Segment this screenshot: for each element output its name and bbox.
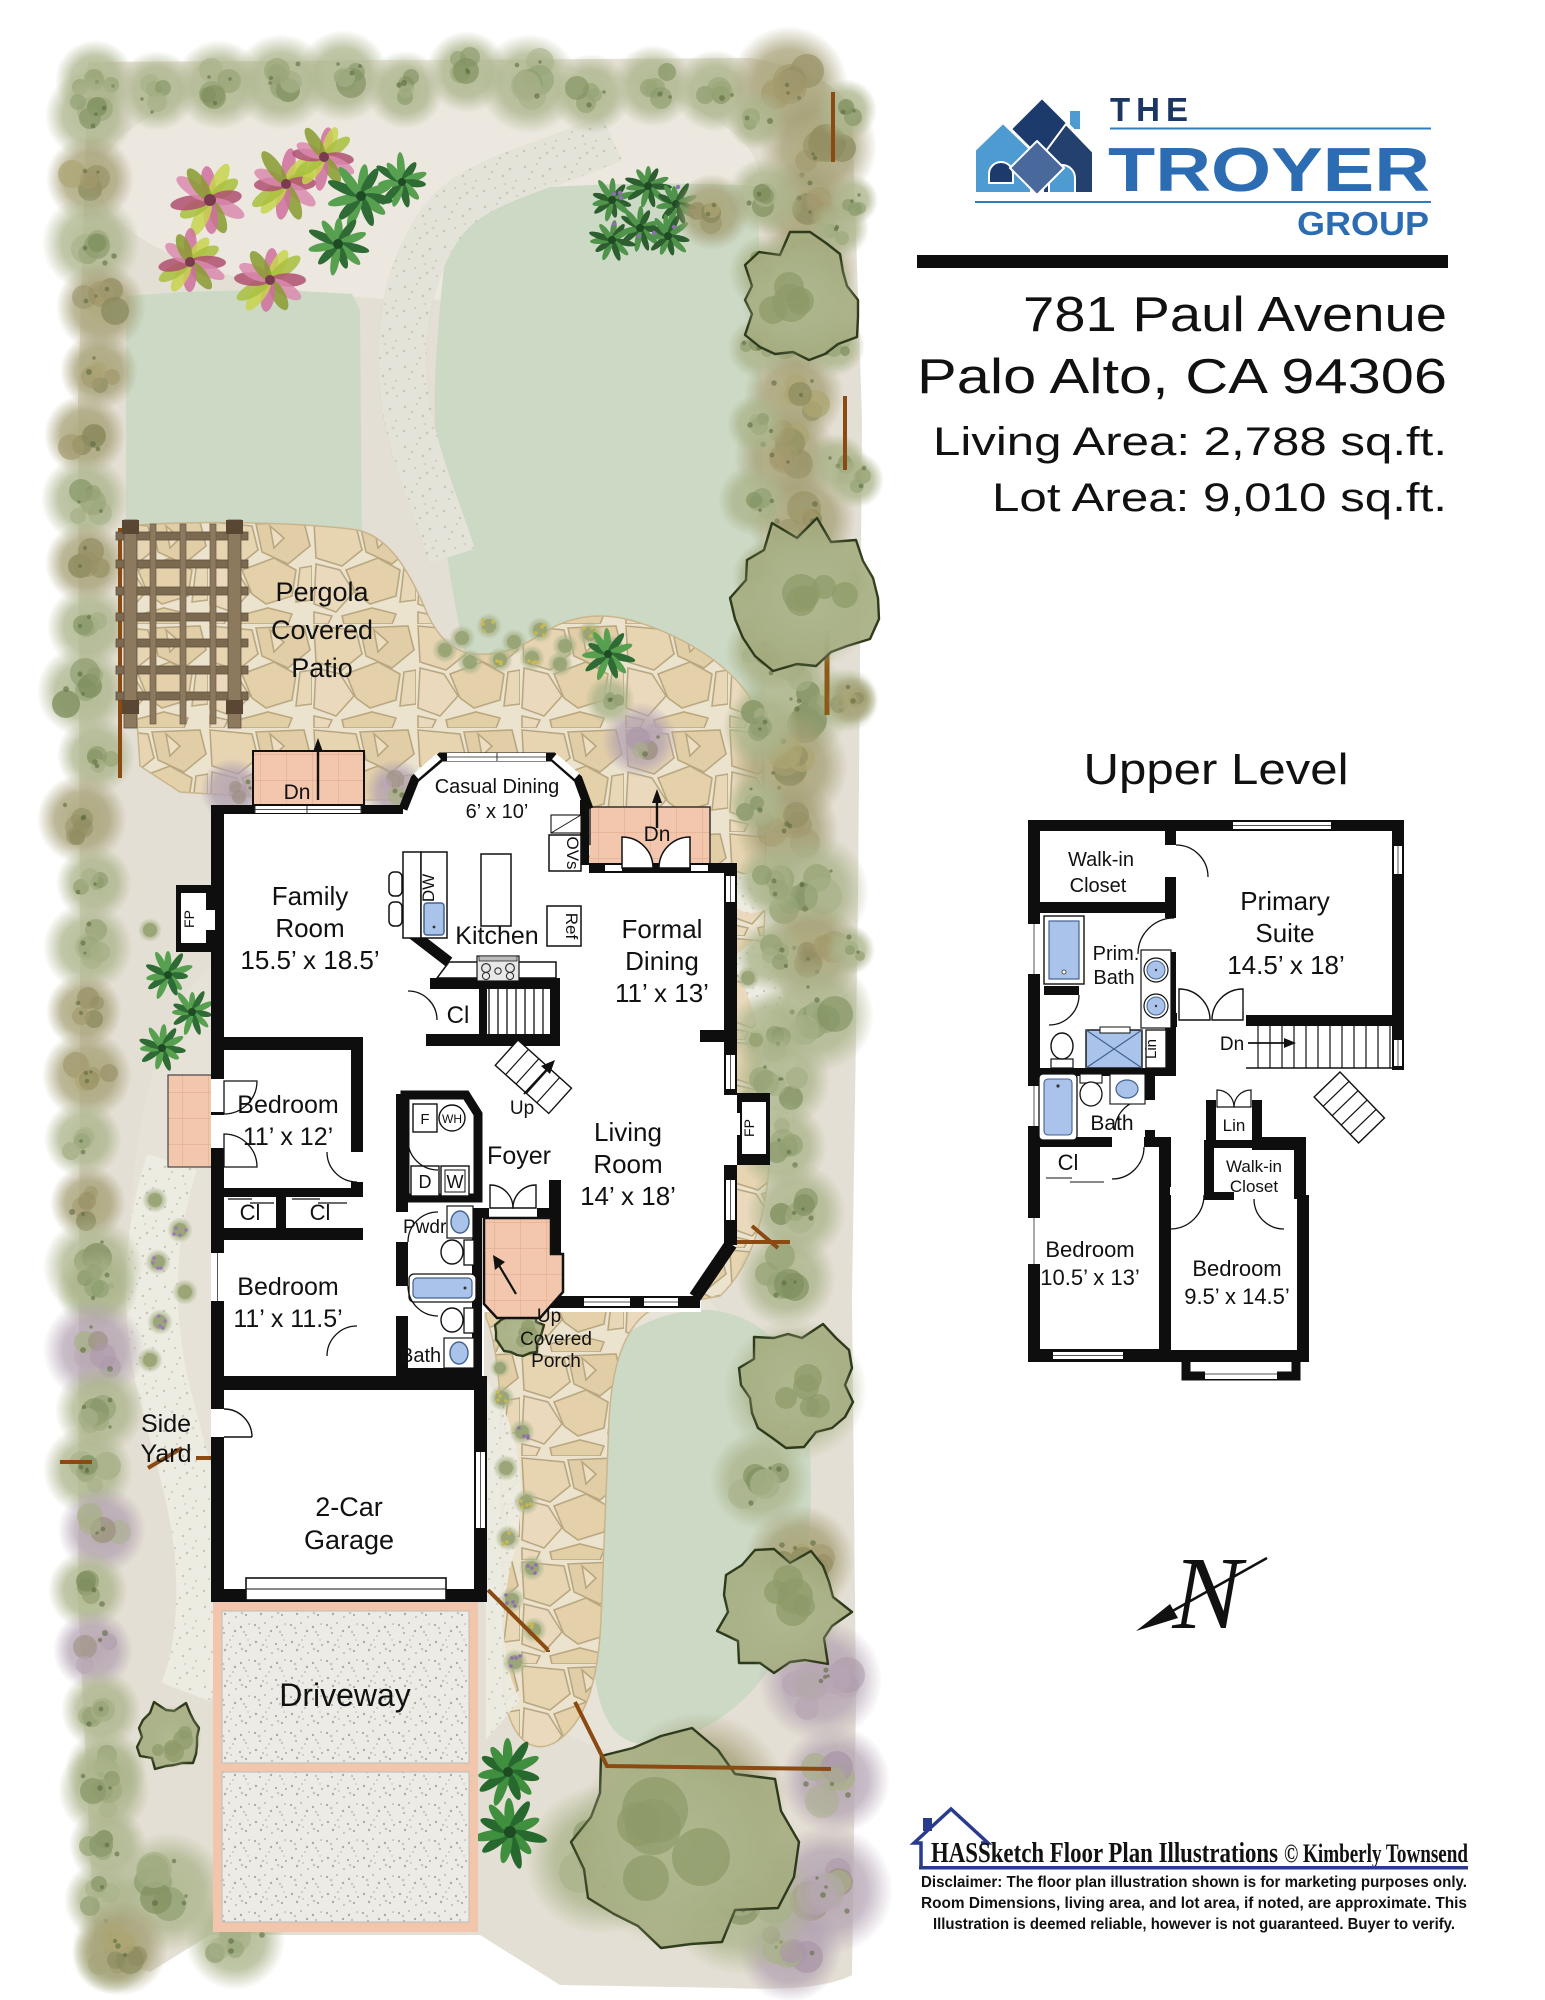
svg-text:Bath: Bath bbox=[400, 1345, 441, 1367]
svg-text:9.5’ x 14.5’: 9.5’ x 14.5’ bbox=[1184, 1284, 1290, 1309]
svg-text:Cl: Cl bbox=[240, 1200, 261, 1225]
svg-text:W: W bbox=[447, 1172, 464, 1192]
svg-text:781 Paul Avenue: 781 Paul Avenue bbox=[1023, 288, 1447, 342]
svg-text:Disclaimer: The floor plan ill: Disclaimer: The floor plan illustration … bbox=[921, 1874, 1467, 1891]
svg-text:Formal: Formal bbox=[622, 914, 703, 944]
svg-text:6’ x 10’: 6’ x 10’ bbox=[466, 801, 529, 823]
svg-text:Family: Family bbox=[272, 881, 349, 911]
svg-text:HASSketch Floor Plan Illustrat: HASSketch Floor Plan Illustrations bbox=[931, 1838, 1278, 1869]
svg-text:Kitchen: Kitchen bbox=[455, 922, 538, 950]
svg-text:Cl: Cl bbox=[447, 1002, 470, 1029]
svg-text:Suite: Suite bbox=[1255, 918, 1314, 948]
svg-text:FP: FP bbox=[181, 910, 197, 928]
svg-text:Pwdr: Pwdr bbox=[403, 1217, 447, 1238]
svg-text:Living Area: 2,788 sq.ft.: Living Area: 2,788 sq.ft. bbox=[933, 420, 1447, 464]
svg-text:Primary: Primary bbox=[1240, 886, 1330, 916]
svg-text:Covered: Covered bbox=[520, 1329, 592, 1350]
svg-text:Palo Alto, CA 94306: Palo Alto, CA 94306 bbox=[917, 350, 1447, 404]
svg-text:© Kimberly Townsend: © Kimberly Townsend bbox=[1284, 1839, 1468, 1868]
svg-text:Room: Room bbox=[275, 913, 344, 943]
svg-text:Covered: Covered bbox=[271, 615, 373, 645]
svg-text:Pergola: Pergola bbox=[275, 577, 369, 607]
svg-text:Prim.: Prim. bbox=[1093, 943, 1140, 965]
svg-text:Living: Living bbox=[594, 1117, 662, 1147]
svg-text:Foyer: Foyer bbox=[487, 1142, 551, 1170]
svg-text:Bedroom: Bedroom bbox=[1192, 1256, 1281, 1281]
svg-text:14.5’ x 18’: 14.5’ x 18’ bbox=[1227, 950, 1345, 980]
svg-text:Room: Room bbox=[593, 1149, 662, 1179]
svg-text:Dining: Dining bbox=[625, 946, 699, 976]
svg-text:14’ x 18’: 14’ x 18’ bbox=[580, 1181, 676, 1211]
svg-text:Bath: Bath bbox=[1090, 1112, 1133, 1135]
svg-text:Garage: Garage bbox=[304, 1525, 394, 1555]
svg-text:GROUP: GROUP bbox=[1297, 205, 1429, 242]
svg-text:Up: Up bbox=[537, 1306, 561, 1327]
svg-text:Casual Dining: Casual Dining bbox=[435, 776, 560, 798]
svg-text:Dn: Dn bbox=[284, 781, 311, 804]
svg-text:Dn: Dn bbox=[1220, 1034, 1244, 1055]
svg-text:Cl: Cl bbox=[1058, 1150, 1079, 1175]
svg-text:N: N bbox=[1171, 1536, 1247, 1651]
svg-text:Up: Up bbox=[510, 1098, 534, 1119]
svg-text:Walk-in: Walk-in bbox=[1226, 1157, 1282, 1176]
svg-text:Walk-in: Walk-in bbox=[1068, 849, 1134, 871]
svg-text:2-Car: 2-Car bbox=[315, 1492, 383, 1522]
svg-text:Room Dimensions, living area,: Room Dimensions, living area, and lot ar… bbox=[921, 1895, 1467, 1912]
svg-text:10.5’ x 13’: 10.5’ x 13’ bbox=[1040, 1265, 1139, 1290]
svg-text:D: D bbox=[419, 1172, 432, 1192]
svg-text:Ref: Ref bbox=[562, 913, 581, 940]
svg-text:Closet: Closet bbox=[1070, 875, 1127, 897]
svg-text:Side: Side bbox=[141, 1410, 191, 1438]
svg-text:Lin: Lin bbox=[1223, 1116, 1246, 1135]
svg-text:11’ x 11.5’: 11’ x 11.5’ bbox=[233, 1305, 342, 1333]
svg-text:Lot Area: 9,010 sq.ft.: Lot Area: 9,010 sq.ft. bbox=[992, 476, 1447, 520]
svg-text:Closet: Closet bbox=[1230, 1177, 1278, 1196]
svg-text:Cl: Cl bbox=[310, 1200, 331, 1225]
svg-text:Yard: Yard bbox=[141, 1440, 192, 1468]
svg-text:11’ x 13’: 11’ x 13’ bbox=[615, 978, 709, 1008]
svg-text:THE: THE bbox=[1110, 91, 1194, 128]
svg-text:WH: WH bbox=[442, 1112, 462, 1126]
svg-text:Driveway: Driveway bbox=[279, 1677, 411, 1713]
svg-text:Upper Level: Upper Level bbox=[1084, 745, 1349, 794]
svg-text:11’ x 12’: 11’ x 12’ bbox=[243, 1123, 333, 1151]
svg-text:TROYER: TROYER bbox=[1108, 136, 1430, 205]
svg-text:DW: DW bbox=[419, 874, 438, 902]
svg-text:Bedroom: Bedroom bbox=[237, 1273, 338, 1301]
svg-text:Porch: Porch bbox=[531, 1351, 581, 1372]
svg-text:15.5’ x 18.5’: 15.5’ x 18.5’ bbox=[240, 945, 379, 975]
svg-text:Bedroom: Bedroom bbox=[237, 1091, 338, 1119]
svg-text:OVs: OVs bbox=[563, 836, 582, 869]
svg-text:Dn: Dn bbox=[644, 823, 671, 846]
svg-text:F: F bbox=[420, 1111, 429, 1128]
svg-text:Illustration is deemed reliabl: Illustration is deemed reliable, however… bbox=[933, 1916, 1455, 1933]
svg-text:Bath: Bath bbox=[1093, 967, 1134, 989]
svg-text:Bedroom: Bedroom bbox=[1045, 1237, 1134, 1262]
svg-text:Patio: Patio bbox=[291, 653, 353, 683]
svg-text:FP: FP bbox=[741, 1119, 757, 1137]
svg-text:Lin: Lin bbox=[1143, 1039, 1160, 1059]
